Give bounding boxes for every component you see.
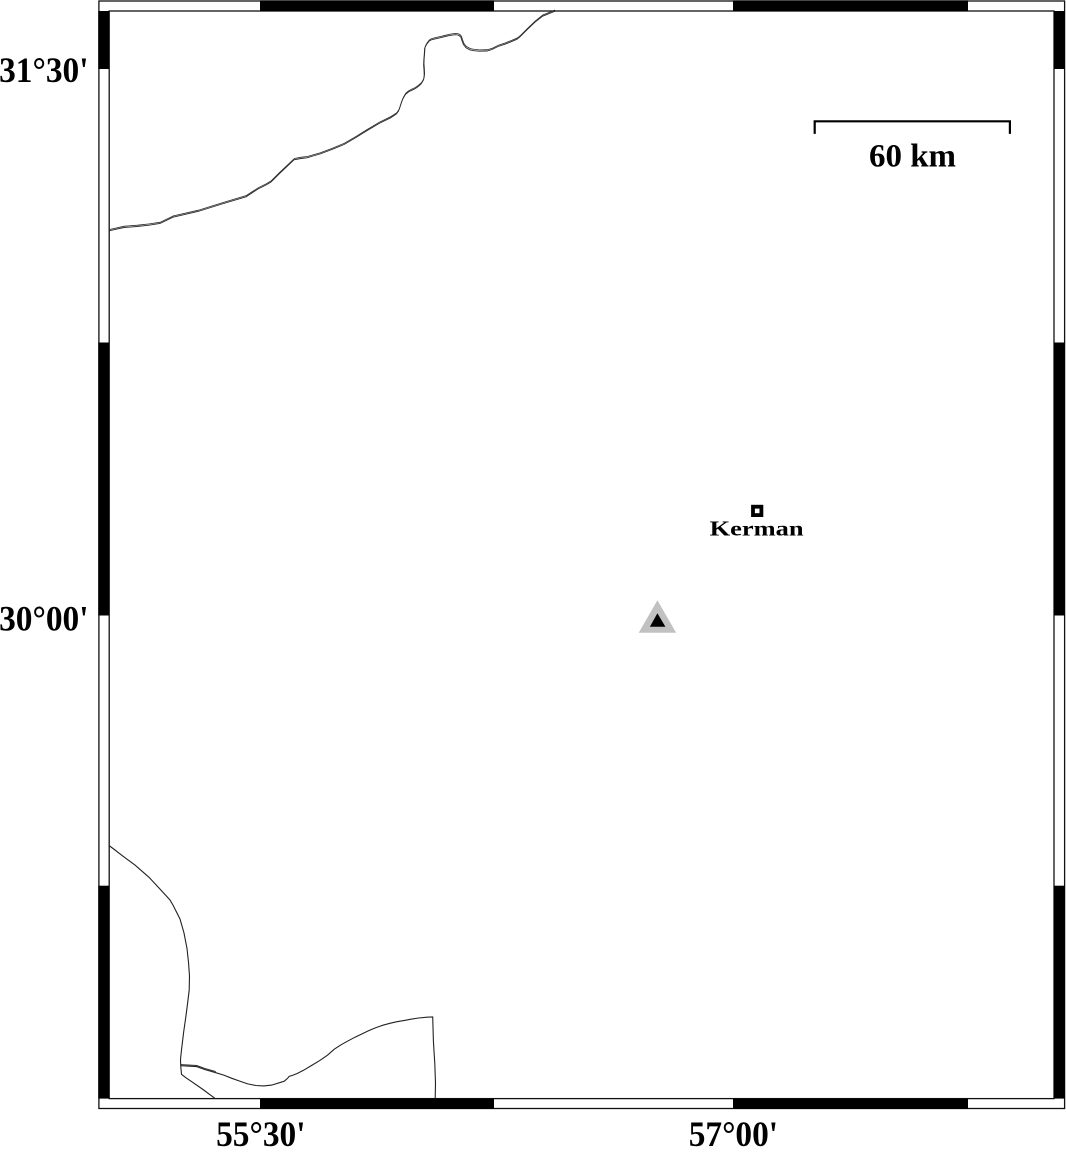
- svg-text:55°30': 55°30': [216, 1114, 305, 1147]
- svg-text:30°00': 30°00': [0, 598, 89, 638]
- svg-text:Kerman: Kerman: [710, 517, 804, 541]
- svg-text:31°30': 31°30': [0, 50, 89, 90]
- svg-text:57°00': 57°00': [689, 1114, 778, 1147]
- svg-text:60 km: 60 km: [869, 139, 956, 175]
